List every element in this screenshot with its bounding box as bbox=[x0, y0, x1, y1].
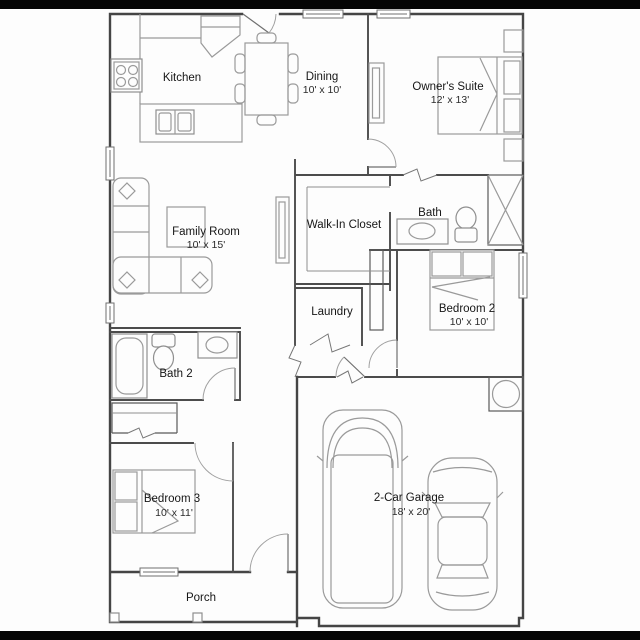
room-label-bath: Bath bbox=[418, 207, 442, 219]
room-label-dining: Dining bbox=[306, 71, 339, 83]
toilet-icon bbox=[455, 207, 477, 242]
bathtub-icon bbox=[112, 334, 147, 398]
window-icon bbox=[140, 568, 178, 576]
top-letterbox-bar bbox=[0, 0, 640, 9]
floor-plan: Kitchen Dining 10' x 10' Owner's Suite 1… bbox=[0, 0, 640, 640]
room-dims-bedroom-3: 10' x 11' bbox=[155, 507, 193, 519]
vanity-sink-icon bbox=[397, 219, 448, 244]
dresser-icon bbox=[369, 63, 384, 123]
room-label-bath-2: Bath 2 bbox=[159, 368, 192, 380]
bottom-letterbox-bar bbox=[0, 631, 640, 640]
window-icon bbox=[303, 10, 343, 18]
room-label-bedroom-2: Bedroom 2 bbox=[439, 303, 495, 315]
dining-table-icon bbox=[235, 33, 298, 125]
toilet-icon bbox=[152, 334, 175, 370]
room-label-bedroom-3: Bedroom 3 bbox=[144, 493, 200, 505]
room-label-kitchen: Kitchen bbox=[163, 72, 201, 84]
room-dims-owners-suite: 12' x 13' bbox=[431, 94, 469, 106]
floor-plan-drawing: Kitchen Dining 10' x 10' Owner's Suite 1… bbox=[0, 0, 640, 640]
room-dims-dining: 10' x 10' bbox=[303, 84, 341, 96]
room-label-laundry: Laundry bbox=[311, 306, 353, 318]
room-label-family-room: Family Room bbox=[172, 226, 240, 238]
room-label-porch: Porch bbox=[186, 592, 216, 604]
porch-post-icon bbox=[193, 613, 202, 622]
room-dims-garage: 18' x 20' bbox=[392, 506, 430, 518]
window-icon bbox=[106, 147, 114, 180]
window-icon bbox=[519, 253, 527, 298]
media-console-icon bbox=[276, 197, 289, 263]
window-icon bbox=[377, 10, 410, 18]
porch-post-icon bbox=[110, 613, 119, 622]
vanity-sink-icon bbox=[198, 332, 237, 358]
room-dims-bedroom-2: 10' x 10' bbox=[450, 316, 488, 328]
plan-background bbox=[0, 0, 640, 640]
stove-icon bbox=[111, 59, 142, 92]
room-label-owners-suite: Owner's Suite bbox=[412, 81, 483, 93]
room-label-walk-in-closet: Walk-In Closet bbox=[307, 219, 382, 231]
room-label-garage: 2-Car Garage bbox=[374, 492, 444, 504]
window-icon bbox=[106, 303, 114, 323]
room-dims-family-room: 10' x 15' bbox=[187, 239, 225, 251]
